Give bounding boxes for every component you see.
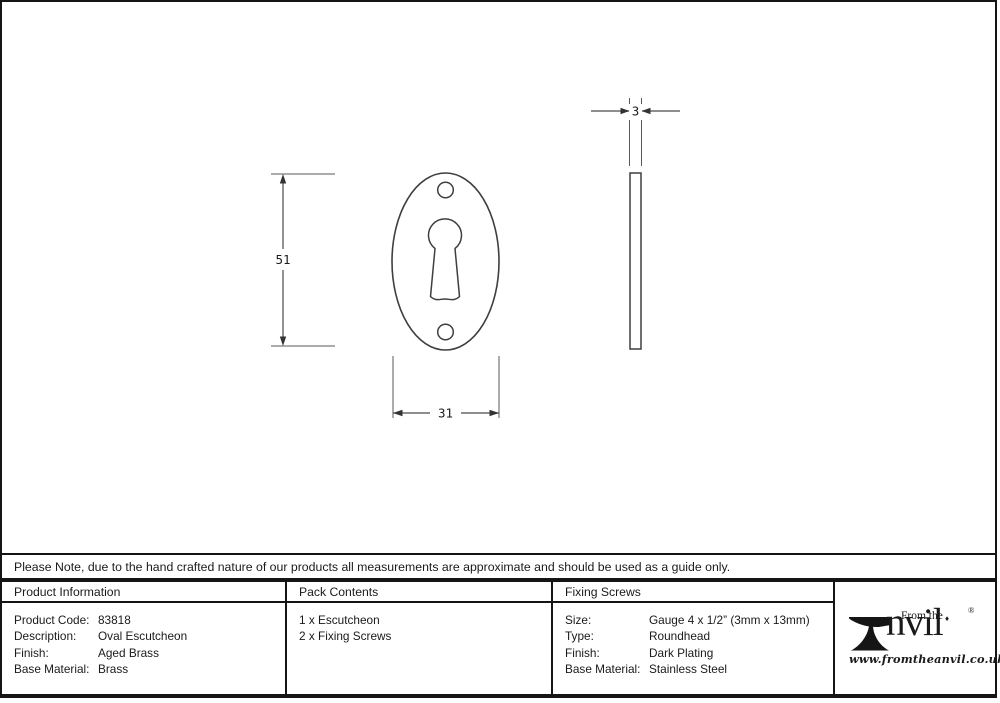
product-code-value: 83818	[98, 612, 131, 628]
logo-diamond-dot: ♦	[945, 614, 949, 623]
screw-size-value: Gauge 4 x 1/2” (3mm x 13mm)	[649, 612, 810, 628]
description-row: Description: Oval Escutcheon	[14, 628, 285, 644]
measurement-note-bar: Please Note, due to the hand crafted nat…	[2, 553, 995, 580]
page-border: 51 31 3	[0, 0, 997, 698]
base-material-label: Base Material:	[14, 661, 98, 677]
screw-finish-label: Finish:	[565, 645, 649, 661]
thickness-dimension-label: 3	[632, 104, 640, 119]
finish-row: Finish: Aged Brass	[14, 645, 285, 661]
pack-item-fixing-screws: 2 x Fixing Screws	[299, 628, 551, 644]
pack-contents-cell: 1 x Escutcheon 2 x Fixing Screws	[287, 603, 553, 694]
logo-name-text: nvil	[886, 600, 943, 645]
product-info-header: Product Information	[2, 582, 287, 603]
finish-value: Aged Brass	[98, 645, 159, 661]
dimension-height: 51	[271, 174, 335, 346]
base-material-row: Base Material: Brass	[14, 661, 285, 677]
from-the-anvil-logo: From the nvil ♦ ® www.fromtheanvil.co.uk	[848, 609, 982, 667]
fixing-screws-cell: Size: Gauge 4 x 1/2” (3mm x 13mm) Type: …	[553, 603, 835, 694]
dimension-width: 31	[393, 356, 499, 421]
base-material-value: Brass	[98, 661, 128, 677]
brand-logo-cell: From the nvil ♦ ® www.fromtheanvil.co.uk	[835, 582, 995, 694]
product-code-row: Product Code: 83818	[14, 612, 285, 628]
screw-finish-row: Finish: Dark Plating	[565, 645, 833, 661]
screw-size-label: Size:	[565, 612, 649, 628]
datasheet-page: 51 31 3	[0, 0, 1000, 703]
description-label: Description:	[14, 628, 98, 644]
product-info-cell: Product Code: 83818 Description: Oval Es…	[2, 603, 287, 694]
side-view-drawing	[630, 173, 641, 349]
screw-finish-value: Dark Plating	[649, 645, 713, 661]
escutcheon-technical-drawing: 51 31 3	[2, 2, 1000, 553]
product-code-label: Product Code:	[14, 612, 98, 628]
measurement-note-text: Please Note, due to the hand crafted nat…	[14, 560, 730, 574]
screw-base-material-label: Base Material:	[565, 661, 649, 677]
screw-type-row: Type: Roundhead	[565, 628, 833, 644]
front-view-drawing	[392, 173, 499, 350]
registered-trademark-symbol: ®	[968, 605, 974, 615]
brand-website-url: www.fromtheanvil.co.uk	[849, 652, 1000, 666]
fixing-screws-header: Fixing Screws	[553, 582, 835, 603]
keyhole-shape	[429, 219, 462, 300]
height-dimension-label: 51	[275, 252, 290, 267]
pack-item-escutcheon: 1 x Escutcheon	[299, 612, 551, 628]
description-value: Oval Escutcheon	[98, 628, 187, 644]
screw-type-value: Roundhead	[649, 628, 710, 644]
screw-size-row: Size: Gauge 4 x 1/2” (3mm x 13mm)	[565, 612, 833, 628]
screw-base-material-row: Base Material: Stainless Steel	[565, 661, 833, 677]
pack-contents-header: Pack Contents	[287, 582, 553, 603]
screw-hole-bottom	[438, 324, 454, 340]
screw-hole-top	[438, 182, 454, 198]
spec-table: Product Information Pack Contents Fixing…	[2, 580, 995, 696]
dimension-thickness: 3	[591, 98, 680, 166]
screw-base-material-value: Stainless Steel	[649, 661, 727, 677]
screw-type-label: Type:	[565, 628, 649, 644]
width-dimension-label: 31	[438, 406, 453, 421]
finish-label: Finish:	[14, 645, 98, 661]
